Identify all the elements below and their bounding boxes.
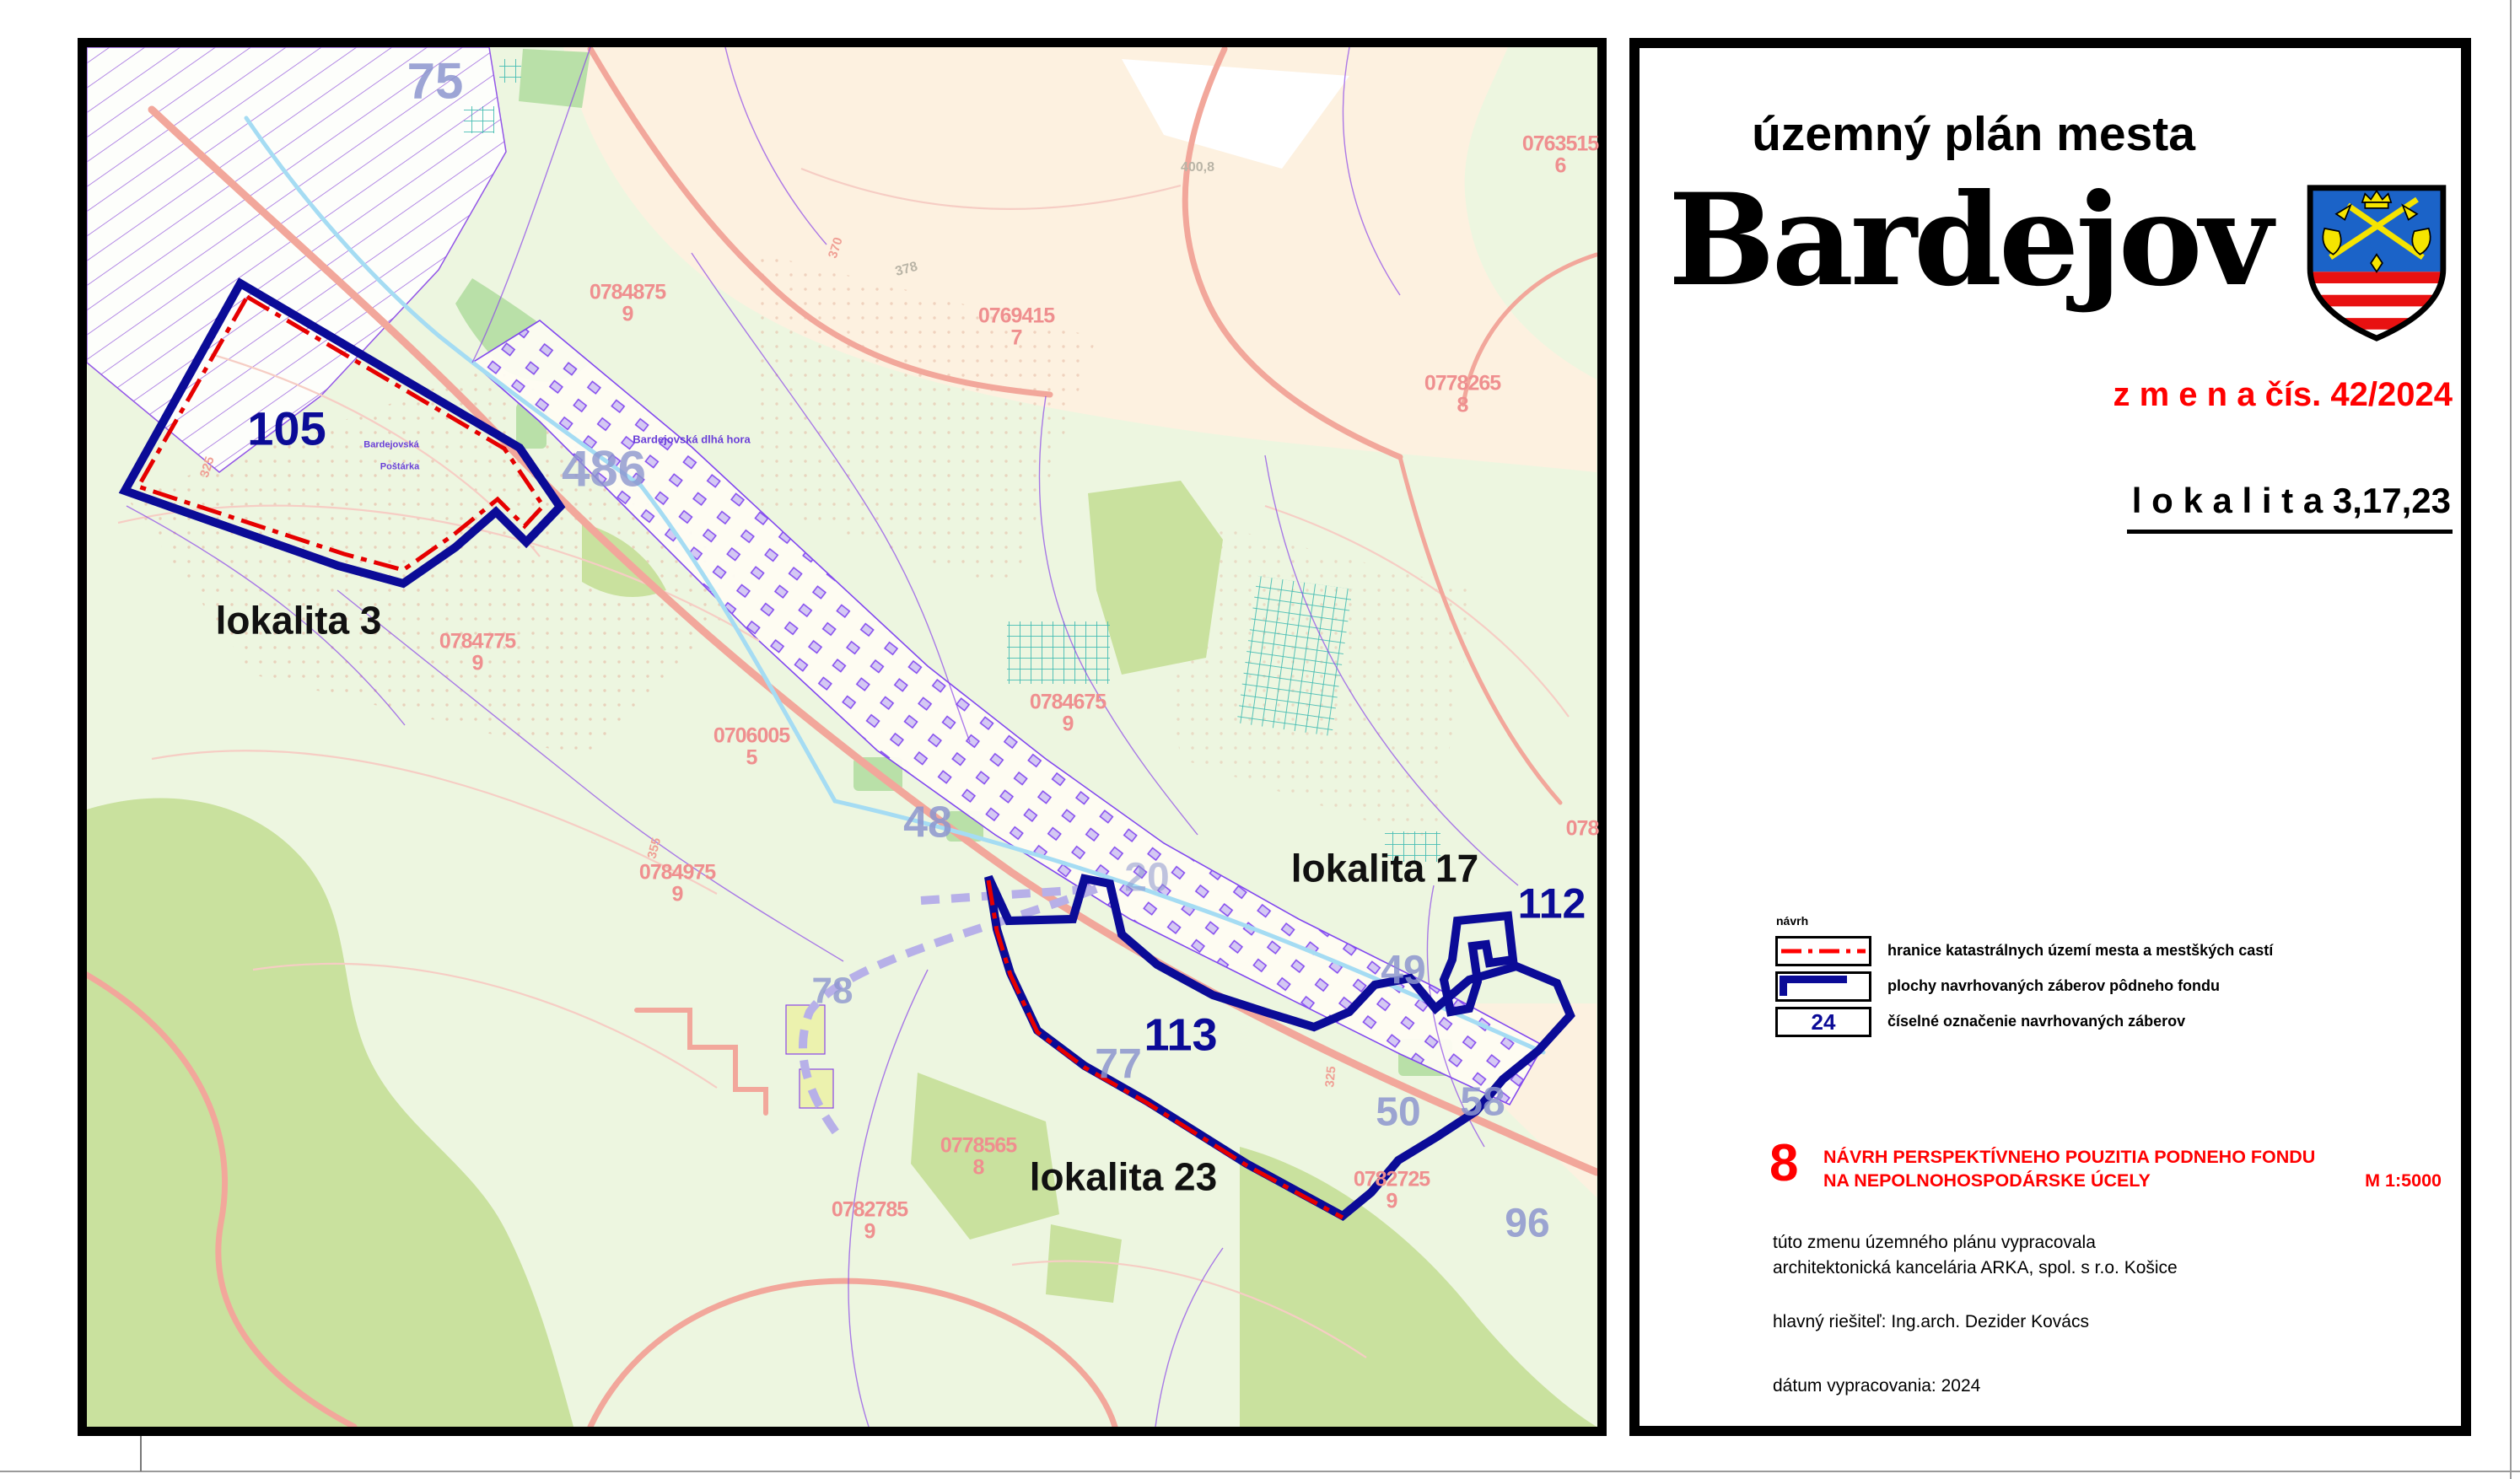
cadastral-map: [78, 38, 1607, 1436]
plan-title-city: Bardejov: [1668, 177, 2270, 304]
legend-heading: návrh: [1776, 914, 1808, 928]
section-title-line2: NA NEPOLNOHOSPODÁRSKE ÚCELY: [1823, 1169, 2151, 1192]
map-scale: M 1:5000: [2365, 1169, 2442, 1192]
credit-date: dátum vypracovania: 2024: [1773, 1376, 1980, 1396]
teal-grid-3: [1007, 621, 1110, 684]
locality-list-text: l o k a l i t a 3,17,23: [2127, 481, 2453, 534]
teal-grid-5: [1385, 831, 1440, 862]
red-dashdot-line-icon: [1778, 938, 1869, 964]
teal-grid-2: [499, 59, 521, 83]
bardejov-coat-of-arms-icon: [2304, 182, 2449, 344]
sheet-section-title: NÁVRH PERSPEKTÍVNEHO POUZITIA PODNEHO FO…: [1823, 1145, 2442, 1192]
legend-swatch-boundary: [1775, 936, 1871, 966]
blue-zone-edge-icon: [1780, 976, 1847, 996]
credit-prepared-by: túto zmenu územného plánu vypracovala: [1773, 1233, 2096, 1253]
sheet-number: 8: [1769, 1138, 1798, 1189]
change-number-line: z m e n a čís. 42/2024: [1931, 376, 2453, 414]
legend-swatch-zone: [1775, 971, 1871, 1002]
teal-grid-1: [464, 106, 494, 133]
legend-label-zone: plochy navrhovaných záberov pôdneho fond…: [1887, 977, 2444, 994]
legend-label-number: číselné označenie navrhovaných záberov: [1887, 1013, 2444, 1030]
credit-chief-architect: hlavný riešiteľ: Ing.arch. Dezider Kovác…: [1773, 1312, 2089, 1332]
locality-list-line: l o k a l i t a 3,17,23: [1931, 481, 2453, 534]
page-edge-bottom: [0, 1471, 2520, 1472]
cadastral-map-drawing: [78, 38, 1607, 1436]
legend-sample-number: 24: [1778, 1009, 1869, 1035]
fold-tick: [140, 1436, 142, 1471]
legend-label-boundary: hranice katastrálnych území mesta a mest…: [1887, 942, 2444, 959]
legend-swatch-number: 24: [1775, 1007, 1871, 1037]
page-edge-right: [2510, 0, 2512, 1479]
plan-title-small: územný plán mesta: [1645, 106, 2302, 162]
credit-office: architektonická kancelária ARKA, spol. s…: [1773, 1258, 2178, 1278]
teal-grid-4: [1236, 576, 1352, 736]
section-title-line1: NÁVRH PERSPEKTÍVNEHO POUZITIA PODNEHO FO…: [1823, 1145, 2442, 1169]
plan-sheet: { "panel": { "title_small": "územný plán…: [0, 0, 2520, 1479]
